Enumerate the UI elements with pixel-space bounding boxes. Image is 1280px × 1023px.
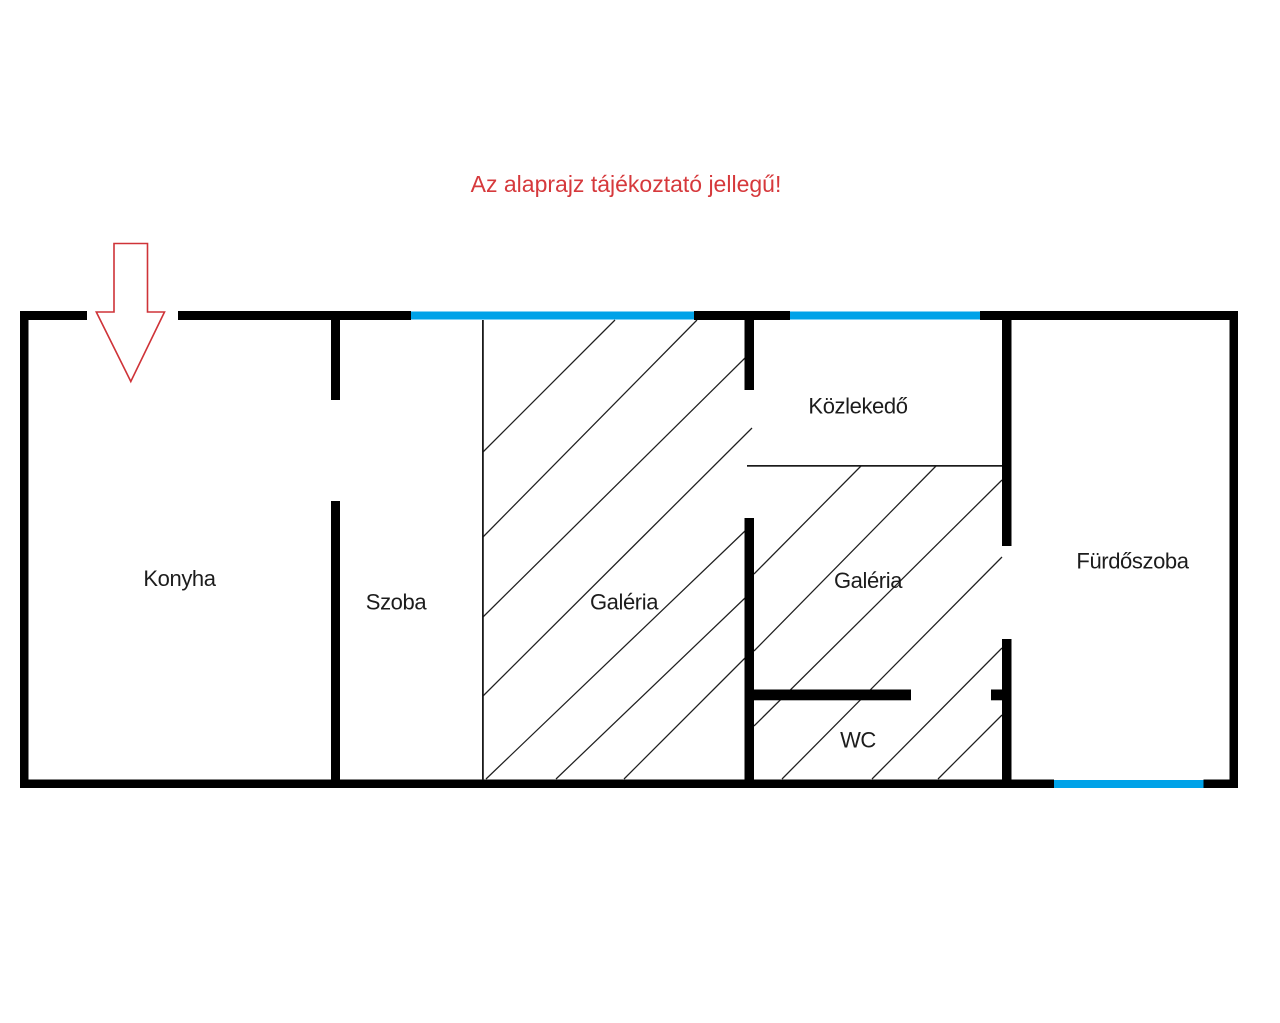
svg-text:Szoba: Szoba — [366, 590, 428, 615]
svg-text:Galéria: Galéria — [590, 590, 659, 615]
svg-text:WC: WC — [840, 728, 876, 753]
svg-text:Közlekedő: Közlekedő — [808, 394, 907, 419]
svg-text:Az alaprajz tájékoztató jelleg: Az alaprajz tájékoztató jellegű! — [471, 171, 782, 197]
svg-text:Konyha: Konyha — [143, 566, 216, 591]
svg-text:Fürdőszoba: Fürdőszoba — [1076, 549, 1189, 574]
svg-text:Galéria: Galéria — [834, 568, 903, 593]
